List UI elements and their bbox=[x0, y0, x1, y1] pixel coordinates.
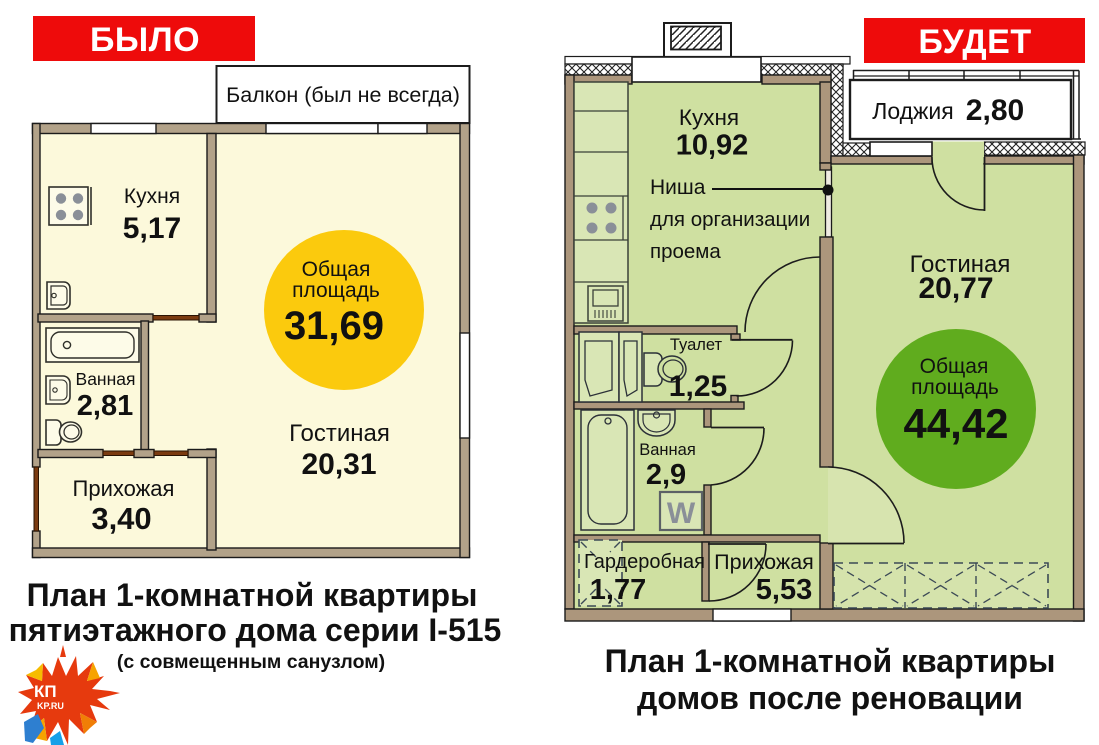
svg-text:3,40: 3,40 bbox=[91, 501, 151, 536]
svg-text:10,92: 10,92 bbox=[676, 130, 749, 162]
svg-text:Ванная: Ванная bbox=[639, 441, 696, 459]
svg-text:2,80: 2,80 bbox=[966, 94, 1024, 127]
svg-text:20,31: 20,31 bbox=[301, 448, 376, 481]
svg-text:Гардеробная: Гардеробная bbox=[584, 551, 705, 573]
svg-text:1,25: 1,25 bbox=[669, 370, 727, 403]
svg-text:2,81: 2,81 bbox=[77, 390, 133, 422]
svg-text:44,42: 44,42 bbox=[903, 400, 1008, 447]
svg-text:5,53: 5,53 bbox=[756, 574, 812, 606]
svg-text:2,9: 2,9 bbox=[646, 459, 686, 491]
svg-text:БУДЕТ: БУДЕТ bbox=[918, 23, 1031, 61]
svg-text:пятиэтажного дома серии I-515: пятиэтажного дома серии I-515 bbox=[9, 612, 502, 648]
svg-text:БЫЛО: БЫЛО bbox=[90, 21, 200, 59]
svg-text:Кухня: Кухня bbox=[679, 105, 739, 130]
svg-text:5,17: 5,17 bbox=[123, 212, 181, 245]
svg-text:Общая: Общая bbox=[920, 355, 989, 378]
svg-text:31,69: 31,69 bbox=[284, 304, 384, 348]
svg-text:Гостиная: Гостиная bbox=[289, 420, 390, 447]
svg-text:(с совмещенным санузлом): (с совмещенным санузлом) bbox=[117, 651, 385, 673]
svg-text:Кухня: Кухня bbox=[124, 185, 180, 208]
svg-text:KP.RU: KP.RU bbox=[37, 701, 64, 711]
svg-text:План 1-комнатной квартиры: План 1-комнатной квартиры bbox=[27, 577, 478, 613]
svg-text:Балкон (был не всегда): Балкон (был не всегда) bbox=[226, 83, 460, 107]
svg-text:проема: проема bbox=[650, 240, 721, 263]
svg-text:Прихожая: Прихожая bbox=[73, 476, 175, 501]
svg-text:Общая: Общая bbox=[302, 258, 371, 281]
svg-text:Туалет: Туалет bbox=[670, 336, 723, 354]
svg-text:Лоджия: Лоджия bbox=[872, 98, 954, 124]
svg-text:1,77: 1,77 bbox=[590, 574, 646, 606]
svg-text:Ниша: Ниша bbox=[650, 176, 706, 199]
svg-text:Прихожая: Прихожая bbox=[714, 550, 814, 574]
svg-text:КП: КП bbox=[34, 682, 57, 701]
svg-text:площадь: площадь bbox=[911, 376, 999, 399]
svg-text:для организации: для организации bbox=[650, 208, 810, 231]
svg-text:площадь: площадь bbox=[292, 279, 380, 302]
svg-text:20,77: 20,77 bbox=[918, 272, 993, 305]
svg-text:домов после реновации: домов после реновации bbox=[637, 680, 1023, 716]
svg-text:План 1-комнатной квартиры: План 1-комнатной квартиры bbox=[605, 643, 1056, 679]
svg-text:W: W bbox=[667, 497, 696, 530]
svg-text:Ванная: Ванная bbox=[76, 369, 136, 389]
